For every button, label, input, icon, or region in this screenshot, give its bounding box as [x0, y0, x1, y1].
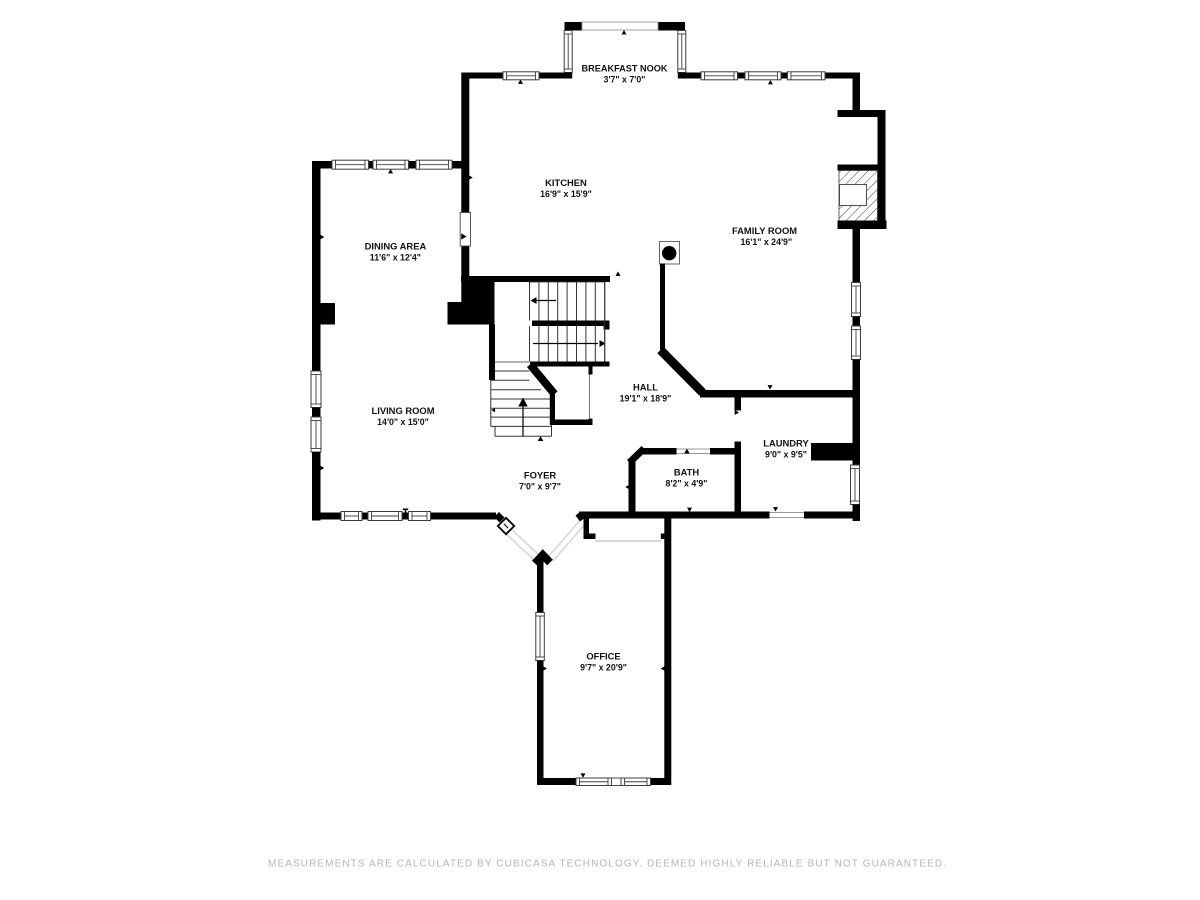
svg-text:7'0" x 9'7": 7'0" x 9'7" — [519, 482, 561, 492]
svg-text:3'7" x 7'0": 3'7" x 7'0" — [604, 75, 646, 85]
svg-text:16'1" x 24'9": 16'1" x 24'9" — [740, 237, 792, 247]
svg-text:HALL: HALL — [633, 382, 658, 393]
svg-text:OFFICE: OFFICE — [586, 651, 620, 662]
svg-text:9'7" x 20'9": 9'7" x 20'9" — [580, 663, 627, 673]
svg-text:11'6" x 12'4": 11'6" x 12'4" — [370, 253, 421, 263]
svg-text:LIVING ROOM: LIVING ROOM — [371, 405, 434, 416]
svg-text:MEASUREMENTS ARE CALCULATED BY: MEASUREMENTS ARE CALCULATED BY CUBICASA … — [268, 859, 946, 870]
svg-text:DINING AREA: DINING AREA — [365, 241, 427, 252]
svg-text:14'0" x 15'0": 14'0" x 15'0" — [377, 417, 429, 427]
svg-text:BATH: BATH — [674, 467, 700, 478]
svg-text:19'1" x 18'9": 19'1" x 18'9" — [620, 394, 672, 404]
svg-text:BREAKFAST NOOK: BREAKFAST NOOK — [582, 63, 668, 74]
svg-text:FOYER: FOYER — [524, 470, 557, 481]
svg-text:KITCHEN: KITCHEN — [545, 177, 587, 188]
svg-text:9'0" x 9'5": 9'0" x 9'5" — [765, 449, 807, 459]
svg-text:FAMILY ROOM: FAMILY ROOM — [732, 225, 797, 236]
svg-text:LAUNDRY: LAUNDRY — [763, 437, 809, 448]
svg-text:16'9" x 15'9": 16'9" x 15'9" — [540, 189, 592, 199]
svg-text:8'2" x 4'9": 8'2" x 4'9" — [666, 479, 708, 489]
